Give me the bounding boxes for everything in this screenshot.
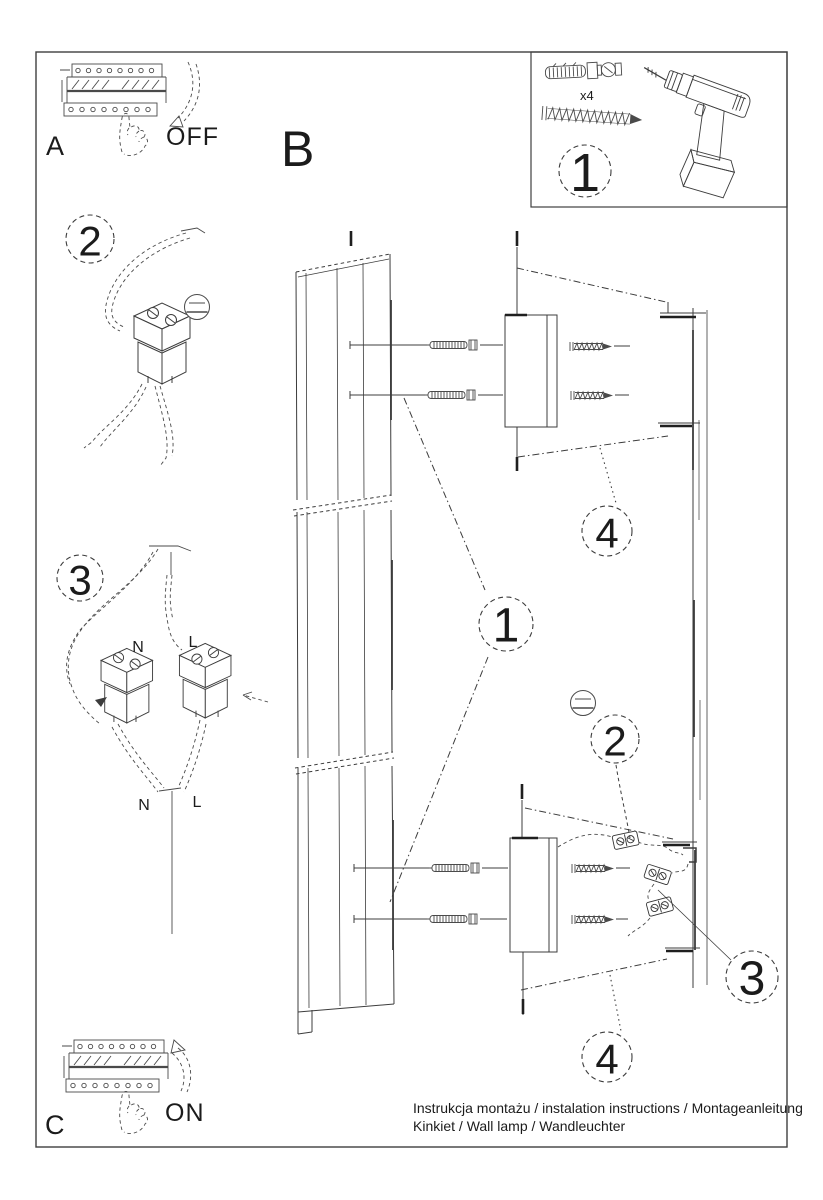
callout-4-top: 4: [595, 510, 618, 557]
arrow-up-icon: [171, 1040, 191, 1092]
terminal-block-icon: [134, 303, 190, 384]
wall-plug-icon: [427, 340, 477, 350]
callout-2: 2: [603, 718, 626, 765]
terminal-block-icon: [179, 643, 231, 718]
wire-connector-icon: [644, 864, 672, 885]
label-n-bottom: N: [138, 797, 150, 814]
mounting-bracket: [510, 838, 557, 952]
terminal-block-icon: [101, 648, 153, 723]
wall-plug-icon: [545, 60, 622, 81]
section-a-power-off: OFF A: [46, 62, 219, 161]
detail-3-number: 3: [68, 557, 91, 604]
hand-icon: [120, 114, 148, 156]
screw-icon: [571, 391, 613, 400]
flathead-screwdriver-icon: [185, 295, 210, 320]
instruction-sheet-page: OFF A x4 1: [0, 0, 823, 1200]
circuit-breaker-icon: [60, 64, 166, 116]
circuit-breaker-icon: [62, 1040, 168, 1092]
section-c-label: C: [45, 1110, 65, 1140]
callout-1: 1: [493, 600, 520, 653]
leader-lines: [390, 268, 731, 1031]
wire-hook-bracket: [683, 848, 696, 862]
screw-icon: [542, 106, 643, 127]
callout-3: 3: [739, 953, 766, 1006]
instruction-sheet: OFF A x4 1: [0, 0, 823, 1200]
arrow-down-icon: [170, 62, 200, 127]
cable-icon: [67, 546, 206, 934]
anchor-quantity: x4: [580, 88, 594, 103]
wall-plug-icon: [429, 863, 479, 873]
section-2-detail: 2: [66, 215, 210, 466]
hand-icon: [120, 1092, 148, 1134]
wire-connector-icon: [612, 831, 639, 850]
bottom-bracket-assembly: [354, 784, 630, 1015]
caption: Instrukcja montażu / instalation instruc…: [413, 1100, 803, 1134]
wall-plug-icon: [425, 390, 475, 400]
label-l-top: L: [189, 634, 198, 651]
wall-plug-icon: [427, 914, 477, 924]
section-c-power-on: ON C: [45, 1040, 205, 1140]
label-l-bottom: L: [193, 794, 202, 811]
arrow-left-icon: [243, 692, 268, 702]
screw-icon: [572, 915, 614, 924]
page-border: [36, 52, 787, 1147]
callout-4-bottom: 4: [595, 1036, 618, 1083]
section-3-detail: 3 N L N L: [57, 546, 268, 934]
drill-icon: [611, 58, 761, 201]
lamp-bar: [293, 231, 394, 1034]
switch-state-on: ON: [165, 1099, 205, 1127]
mounting-bracket: [505, 315, 557, 427]
parts-box: x4 1: [531, 52, 787, 207]
switch-state-off: OFF: [166, 123, 219, 151]
top-bracket-assembly: [350, 231, 630, 471]
caption-line-1: Instrukcja montażu / instalation instruc…: [413, 1100, 803, 1116]
section-b-label: B: [281, 121, 314, 177]
wall-rail: [658, 302, 707, 988]
wire-connector-icon: [646, 897, 674, 917]
screw-icon: [570, 342, 612, 351]
label-n-top: N: [132, 639, 144, 656]
section-a-label: A: [46, 131, 64, 161]
callouts: 1 2 3 4 4: [479, 506, 778, 1083]
caption-line-2: Kinkiet / Wall lamp / Wandleuchter: [413, 1118, 625, 1134]
parts-step-number: 1: [570, 143, 600, 203]
flathead-screwdriver-icon: [571, 691, 596, 716]
detail-2-number: 2: [78, 218, 101, 265]
main-assembly-diagram: B: [281, 121, 778, 1083]
screw-icon: [572, 864, 614, 873]
